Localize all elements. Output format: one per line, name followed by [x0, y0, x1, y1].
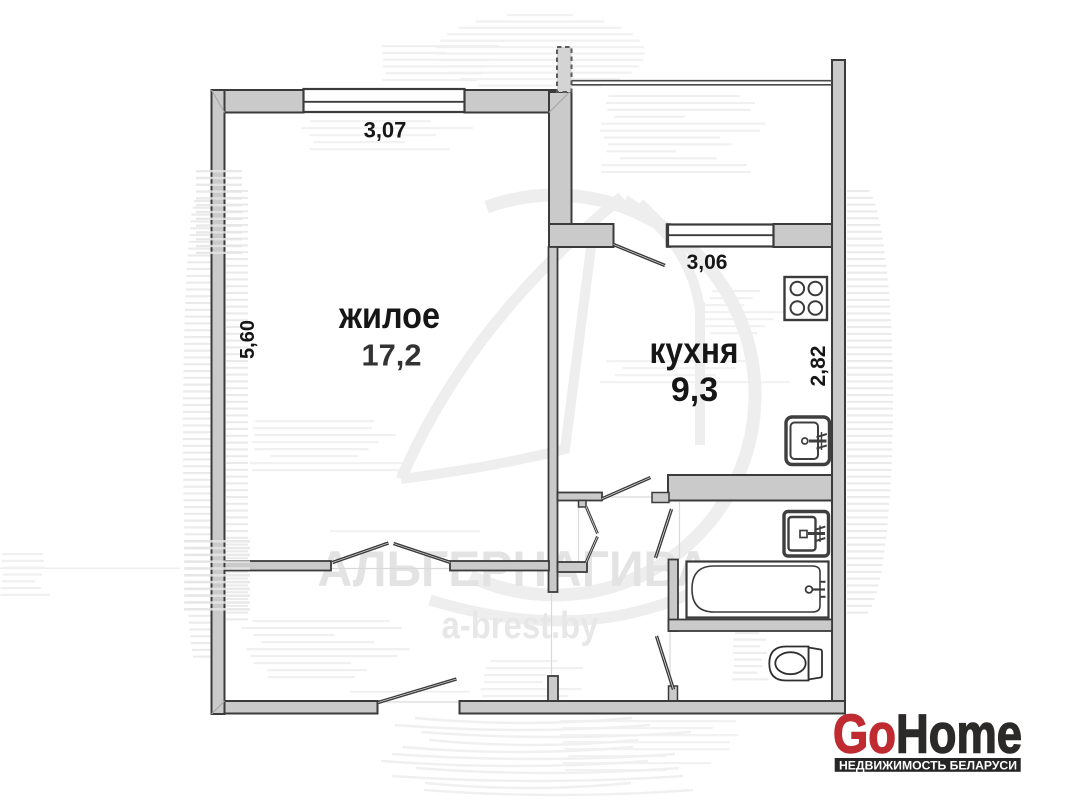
- svg-text:9,3: 9,3: [671, 371, 718, 409]
- svg-text:a-brest.by: a-brest.by: [442, 605, 599, 647]
- svg-text:жилое: жилое: [338, 295, 440, 336]
- svg-text:2,82: 2,82: [807, 346, 830, 387]
- svg-text:17,2: 17,2: [362, 338, 422, 373]
- svg-text:5,60: 5,60: [237, 320, 259, 359]
- svg-text:кухня: кухня: [650, 330, 739, 371]
- svg-text:GoHome: GoHome: [833, 703, 1022, 765]
- svg-text:3,06: 3,06: [687, 251, 728, 274]
- svg-text:НЕДВИЖИМОСТЬ БЕЛАРУСИ: НЕДВИЖИМОСТЬ БЕЛАРУСИ: [839, 761, 1017, 773]
- svg-text:3,07: 3,07: [364, 118, 407, 143]
